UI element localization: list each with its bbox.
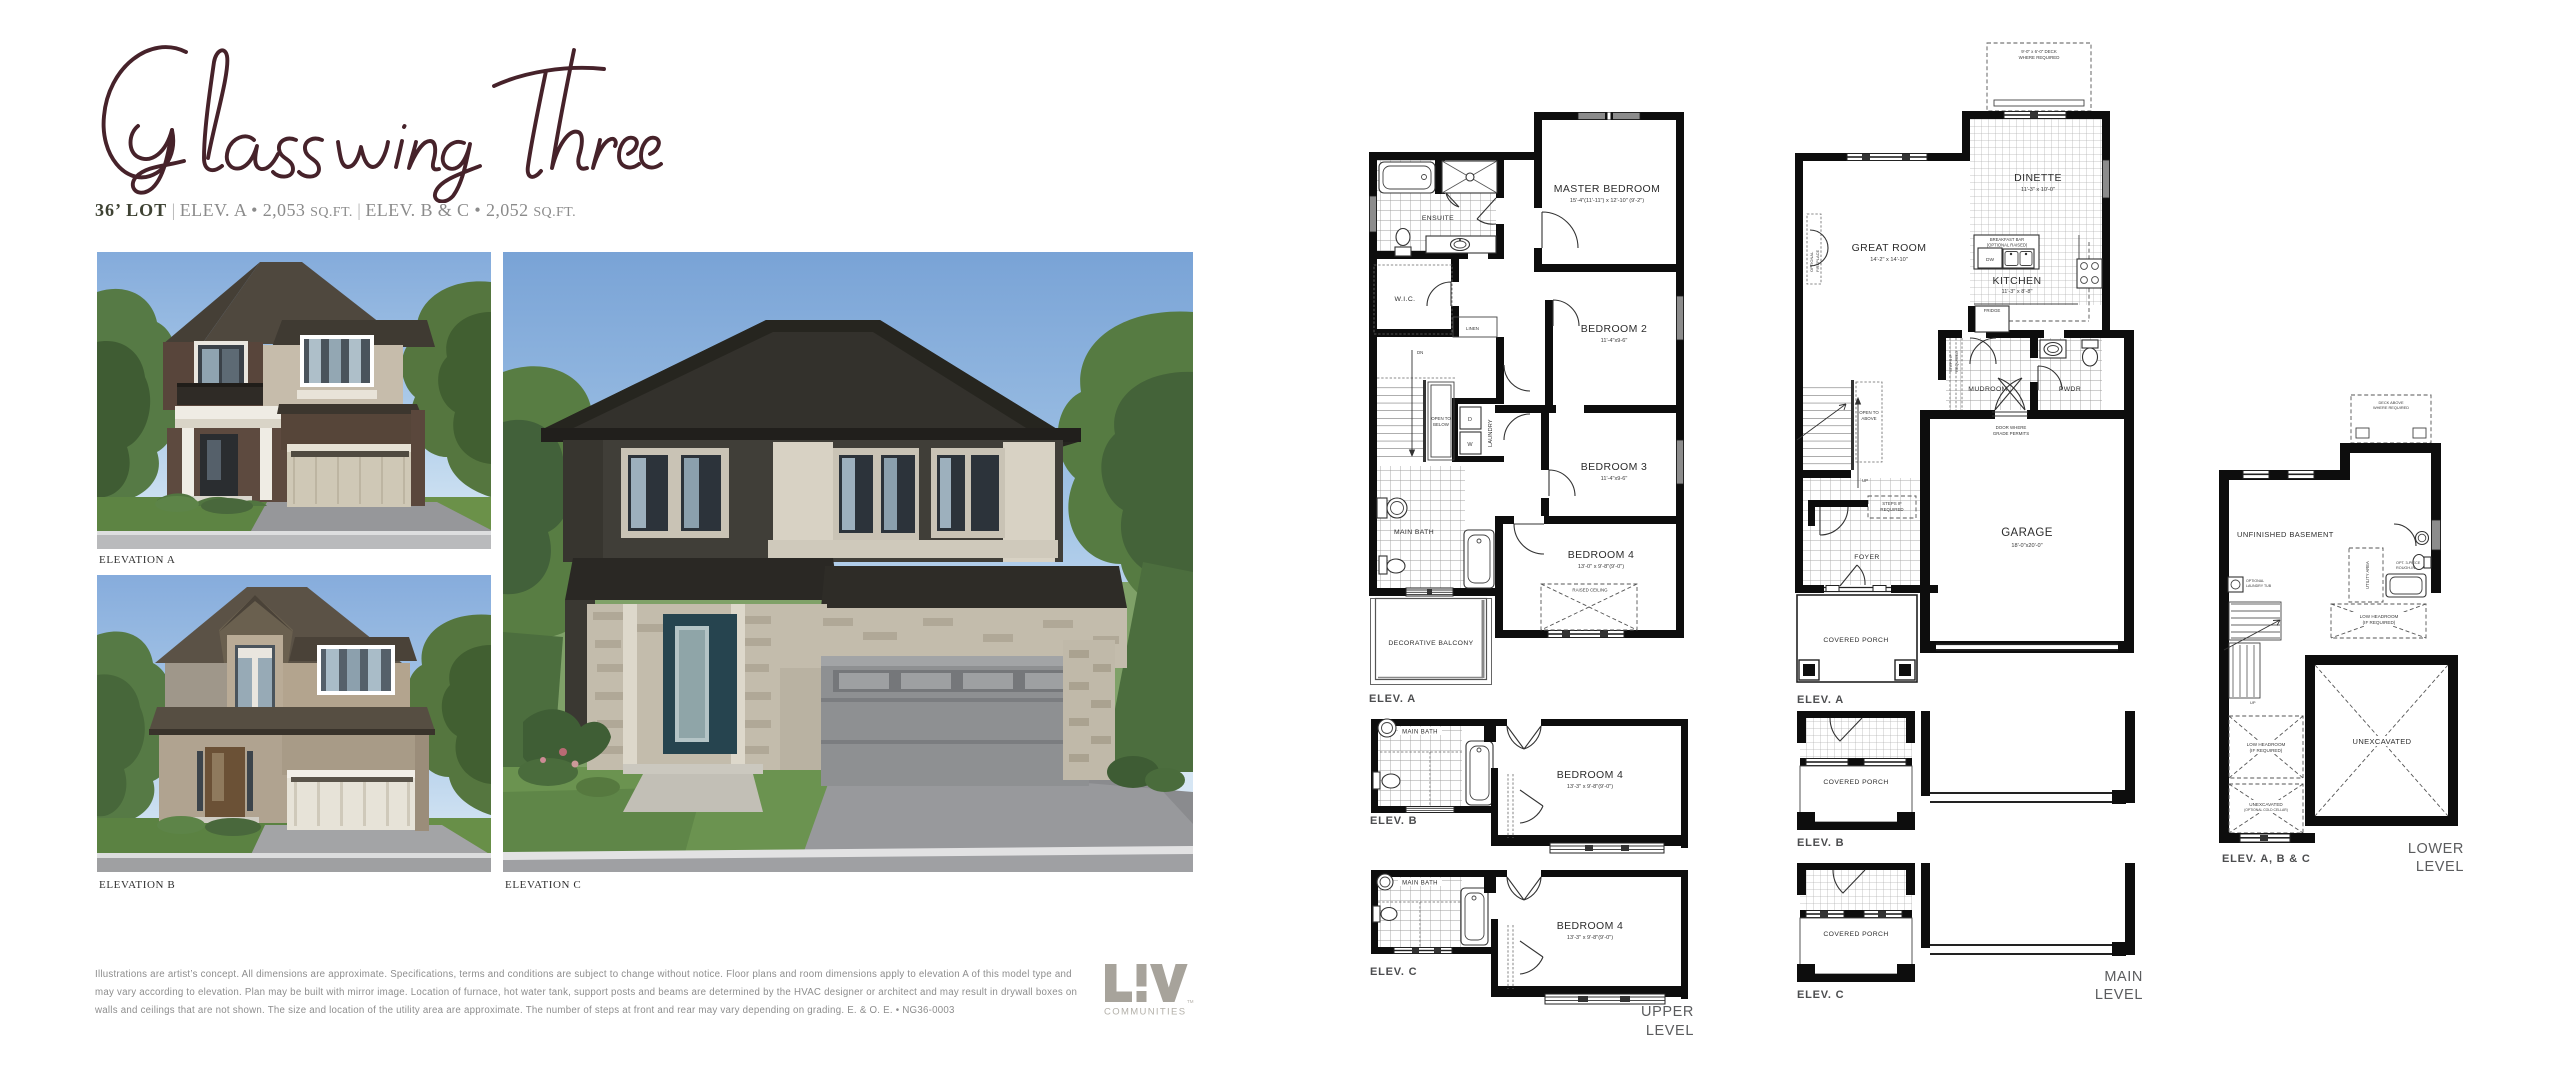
svg-text:ELEV. B: ELEV. B — [1797, 837, 1844, 849]
svg-text:COVERED PORCH: COVERED PORCH — [1823, 637, 1888, 644]
svg-text:11'-4"x9-6": 11'-4"x9-6" — [1601, 476, 1628, 482]
svg-text:OPT. 3-PIECE: OPT. 3-PIECE — [2396, 561, 2421, 565]
svg-text:STEPS IF: STEPS IF — [1948, 354, 1953, 372]
svg-text:GREAT ROOM: GREAT ROOM — [1852, 242, 1927, 254]
svg-text:11'-3" x 10'-0": 11'-3" x 10'-0" — [2021, 187, 2055, 193]
svg-text:FRIDGE: FRIDGE — [1984, 308, 2001, 313]
svg-text:UPPER: UPPER — [1641, 1004, 1694, 1020]
svg-text:13'-3" x 9'-8"(9'-0"): 13'-3" x 9'-8"(9'-0") — [1567, 784, 1613, 790]
svg-text:(IF REQUIRED): (IF REQUIRED) — [2250, 748, 2283, 753]
svg-text:BELOW: BELOW — [1433, 422, 1450, 427]
svg-text:STEPS IF: STEPS IF — [1882, 501, 1902, 506]
svg-text:13'-3" x 9'-8"(9'-0"): 13'-3" x 9'-8"(9'-0") — [1567, 935, 1613, 941]
svg-text:ELEV. C: ELEV. C — [1370, 966, 1417, 978]
svg-text:OPEN TO: OPEN TO — [1431, 416, 1451, 421]
svg-text:KITCHEN: KITCHEN — [1993, 275, 2042, 287]
svg-text:(OPTIONAL RAISED): (OPTIONAL RAISED) — [1987, 243, 2028, 248]
svg-text:LOWER: LOWER — [2408, 841, 2464, 857]
svg-text:COVERED PORCH: COVERED PORCH — [1823, 779, 1888, 786]
svg-text:OPTIONAL: OPTIONAL — [1809, 251, 1814, 272]
svg-text:GARAGE: GARAGE — [2001, 527, 2053, 539]
svg-text:FIREPLACE: FIREPLACE — [1815, 249, 1820, 272]
svg-text:LOW HEADROOM: LOW HEADROOM — [2360, 614, 2399, 619]
svg-text:ROUGH-IN: ROUGH-IN — [2396, 566, 2415, 570]
svg-text:UTILITY AREA: UTILITY AREA — [2365, 561, 2370, 589]
svg-text:BEDROOM 4: BEDROOM 4 — [1568, 549, 1635, 561]
svg-text:DOOR WHERE: DOOR WHERE — [1996, 425, 2027, 430]
svg-text:15'-4"(11'-11") x 12'-10" (9'-: 15'-4"(11'-11") x 12'-10" (9'-2") — [1570, 198, 1644, 204]
svg-text:LEVEL: LEVEL — [2416, 859, 2464, 875]
svg-text:UP: UP — [1862, 478, 1868, 483]
svg-text:RAISED CEILING: RAISED CEILING — [1572, 588, 1608, 593]
svg-text:MASTER BEDROOM: MASTER BEDROOM — [1554, 183, 1661, 195]
svg-text:WHERE REQUIRED: WHERE REQUIRED — [2019, 55, 2060, 60]
svg-text:11'-3" x 8'-8": 11'-3" x 8'-8" — [2002, 289, 2033, 295]
svg-text:11'-4"x9-6": 11'-4"x9-6" — [1601, 338, 1628, 344]
svg-text:MUDROOM: MUDROOM — [1968, 386, 2007, 393]
svg-text:ENSUITE: ENSUITE — [1422, 215, 1454, 222]
svg-text:DECORATIVE BALCONY: DECORATIVE BALCONY — [1388, 640, 1473, 647]
svg-text:ELEV. B: ELEV. B — [1370, 815, 1417, 827]
svg-text:MAIN BATH: MAIN BATH — [1394, 529, 1434, 536]
svg-text:MAIN BATH: MAIN BATH — [1402, 730, 1438, 736]
svg-text:UNEXCAVATED: UNEXCAVATED — [2353, 737, 2412, 746]
svg-text:ELEV. C: ELEV. C — [1797, 989, 1844, 1001]
svg-text:REQUIRED: REQUIRED — [1880, 507, 1903, 512]
svg-text:BEDROOM 4: BEDROOM 4 — [1557, 769, 1624, 781]
svg-text:LINEN: LINEN — [1466, 326, 1479, 331]
svg-text:13'-0" x 9'-8"(9'-0"): 13'-0" x 9'-8"(9'-0") — [1578, 564, 1624, 570]
svg-text:9'-0" x 6'-0" DECK: 9'-0" x 6'-0" DECK — [2021, 49, 2057, 54]
svg-text:18'-0"x20'-0": 18'-0"x20'-0" — [2011, 543, 2042, 549]
svg-text:(IF REQUIRED): (IF REQUIRED) — [2363, 620, 2396, 625]
svg-text:BEDROOM 3: BEDROOM 3 — [1581, 461, 1648, 473]
svg-text:(OPTIONAL COLD CELLAR): (OPTIONAL COLD CELLAR) — [2244, 808, 2288, 812]
svg-text:COMMUNITIES: COMMUNITIES — [1104, 1007, 1186, 1018]
svg-text:ELEV. A, B & C: ELEV. A, B & C — [2222, 853, 2311, 865]
svg-text:UNFINISHED BASEMENT: UNFINISHED BASEMENT — [2237, 530, 2334, 539]
svg-text:OPTIONAL: OPTIONAL — [2246, 579, 2264, 583]
svg-text:GRADE PERMITS: GRADE PERMITS — [1993, 431, 2029, 436]
svg-text:REQUIRED: REQUIRED — [1954, 351, 1959, 372]
svg-text:D: D — [1468, 417, 1472, 423]
svg-text:LOW HEADROOM: LOW HEADROOM — [2247, 742, 2286, 747]
svg-text:FOYER: FOYER — [1854, 554, 1879, 561]
svg-text:ELEV. A: ELEV. A — [1369, 693, 1416, 705]
svg-text:ABOVE: ABOVE — [1861, 416, 1876, 421]
svg-text:DW: DW — [1986, 257, 1994, 263]
svg-text:LEVEL: LEVEL — [2095, 987, 2143, 1003]
svg-text:UNEXCAVATED: UNEXCAVATED — [2249, 802, 2283, 807]
svg-text:LAUNDRY: LAUNDRY — [1488, 419, 1494, 447]
svg-text:WHERE REQUIRED: WHERE REQUIRED — [2373, 405, 2409, 410]
svg-text:BEDROOM 2: BEDROOM 2 — [1581, 323, 1648, 335]
svg-text:LEVEL: LEVEL — [1646, 1023, 1694, 1039]
svg-text:TM: TM — [1187, 999, 1194, 1004]
svg-text:OPEN TO: OPEN TO — [1859, 410, 1879, 415]
svg-text:W: W — [1467, 442, 1473, 448]
svg-text:COVERED PORCH: COVERED PORCH — [1823, 931, 1888, 938]
svg-text:BREAKFAST BAR: BREAKFAST BAR — [1990, 237, 2024, 242]
svg-text:DINETTE: DINETTE — [2014, 172, 2062, 184]
svg-text:LAUNDRY TUB: LAUNDRY TUB — [2246, 584, 2272, 588]
svg-text:MAIN BATH: MAIN BATH — [1402, 881, 1438, 887]
svg-text:BEDROOM 4: BEDROOM 4 — [1557, 920, 1624, 932]
svg-text:ELEV. A: ELEV. A — [1797, 694, 1844, 706]
svg-text:MAIN: MAIN — [2104, 969, 2143, 985]
svg-text:DN: DN — [1417, 350, 1423, 355]
svg-text:14'-2" x 14'-10": 14'-2" x 14'-10" — [1870, 257, 1908, 263]
svg-text:W.I.C.: W.I.C. — [1395, 296, 1416, 303]
svg-text:UP: UP — [2250, 700, 2256, 705]
